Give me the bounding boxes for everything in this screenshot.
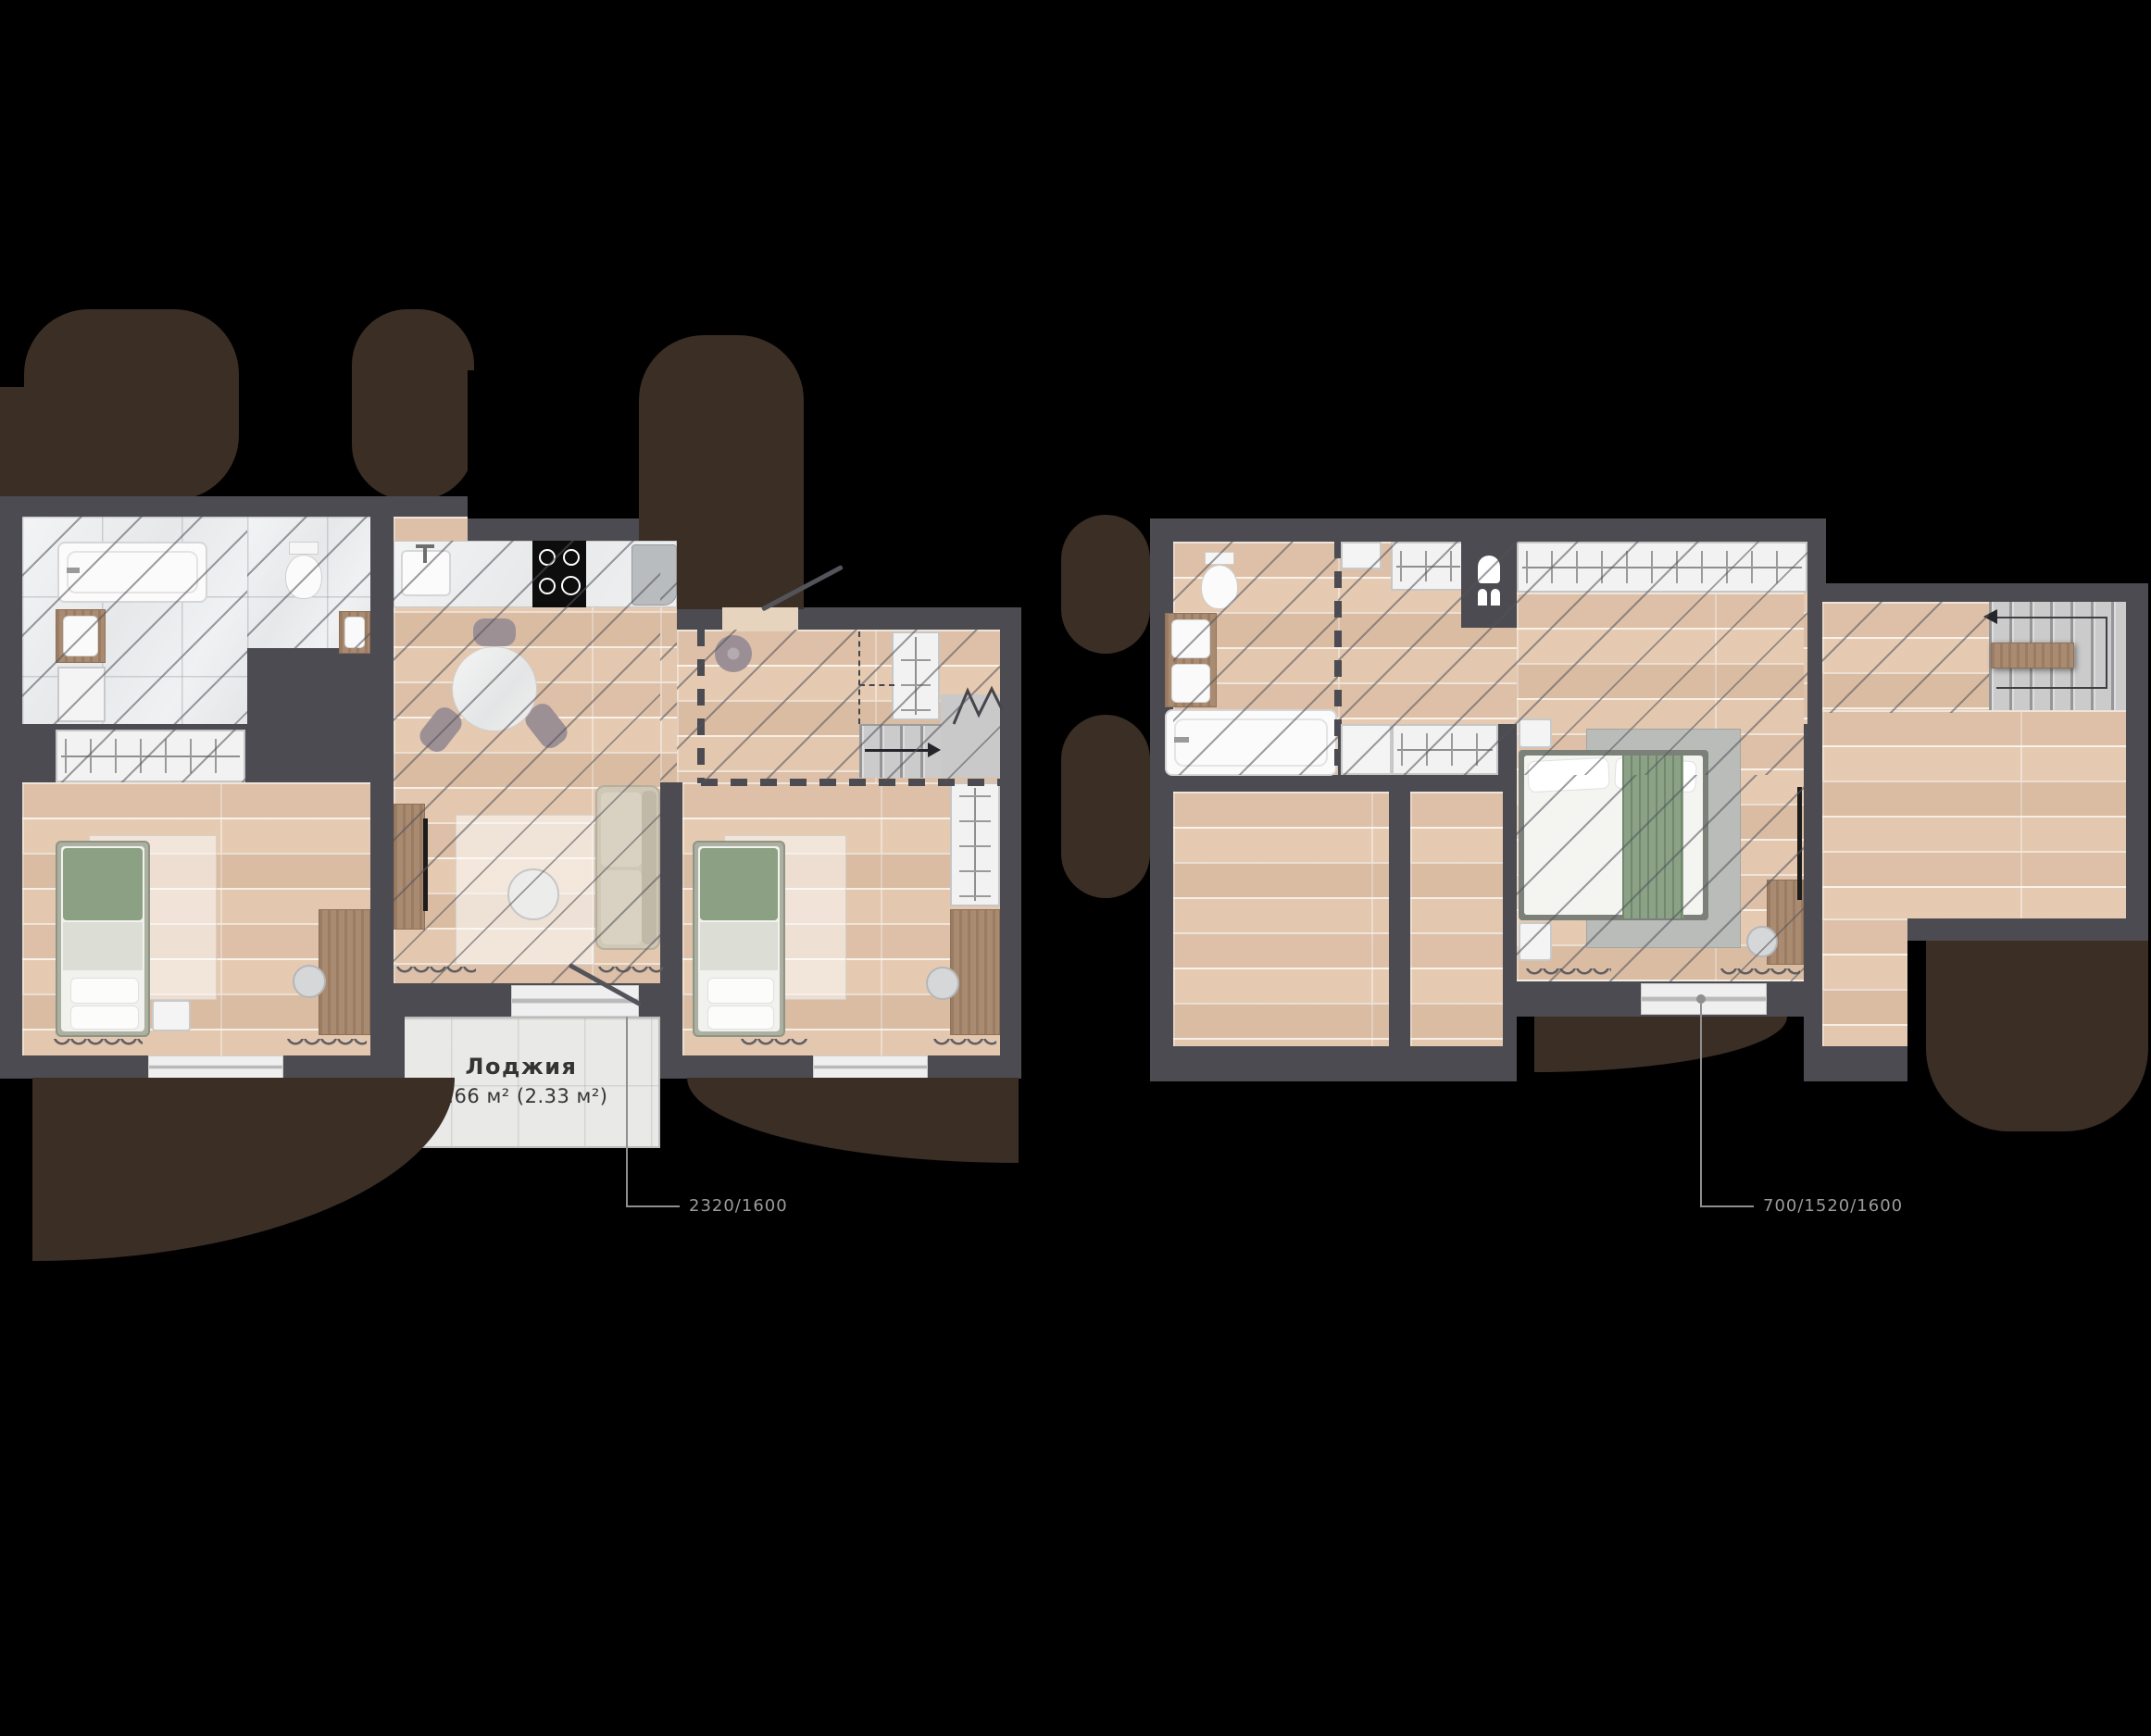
curtain <box>933 1039 996 1047</box>
cabinet <box>1341 542 1382 569</box>
leader-line <box>626 1205 680 1207</box>
toilet-tank <box>1205 552 1234 565</box>
office-chair <box>926 967 959 1000</box>
bed-pillow <box>70 978 139 1004</box>
stair-arrow-head <box>1983 609 1997 624</box>
leader-line <box>626 1017 628 1206</box>
fridge <box>632 544 677 606</box>
curtain <box>741 1039 807 1047</box>
bed-green-throw <box>1622 756 1683 918</box>
tv <box>423 818 428 911</box>
stair-wardrobe <box>892 631 940 720</box>
bed-sheet <box>63 922 143 970</box>
bathtub-faucet <box>67 568 80 573</box>
room-corridor-floor <box>1410 792 1503 1046</box>
stair-hall-floor <box>1822 602 1989 713</box>
burner <box>561 576 581 595</box>
tv-console <box>394 804 425 930</box>
bedroom2-window <box>813 1055 928 1079</box>
sink-basin <box>1171 619 1210 658</box>
niche-toilet-foot <box>1491 589 1500 606</box>
zone-divider-dashed <box>697 630 705 783</box>
room-left-floor <box>1173 792 1389 1046</box>
bathtub-faucet <box>1174 737 1189 743</box>
desk <box>319 909 370 1035</box>
kitchen-sink <box>401 550 451 596</box>
stair-outline-dashed <box>858 631 860 724</box>
toilet-bowl <box>1201 565 1238 609</box>
decor <box>954 689 1002 724</box>
sofa-back <box>642 791 657 944</box>
bed-blanket <box>63 848 143 920</box>
bed-pillow <box>1527 757 1610 793</box>
curtain <box>287 1039 367 1047</box>
sink-basin <box>63 616 98 656</box>
bed-pillow <box>707 1005 774 1030</box>
toilet <box>1194 552 1244 613</box>
room-right-floor <box>1822 918 1907 1046</box>
room-right-floor <box>1822 710 2126 918</box>
dining-table <box>452 646 537 731</box>
wc-sink-basin <box>344 617 365 648</box>
toilet-bowl <box>285 555 322 599</box>
burner <box>539 549 556 566</box>
door-swing-shade <box>32 1078 455 1261</box>
dining-chair <box>473 618 516 646</box>
kitchen-faucet <box>423 546 427 563</box>
curtain <box>1720 968 1800 977</box>
burner <box>563 549 580 566</box>
niche-toilet-foot <box>1478 589 1487 606</box>
tv <box>1797 787 1802 900</box>
toilet-tank <box>289 542 319 555</box>
double-vanity <box>1165 613 1217 707</box>
sink-counter <box>56 609 106 663</box>
bed-single <box>56 841 150 1037</box>
curtain <box>396 967 476 975</box>
bed-double <box>1519 750 1708 920</box>
wc-niche-wall <box>1461 542 1517 628</box>
sofa <box>595 785 660 950</box>
coffee-table <box>507 868 559 920</box>
cooktop <box>532 541 586 607</box>
door-swing-shade <box>687 1078 1019 1163</box>
stair-outline-dashed <box>859 684 894 686</box>
toilet <box>278 542 330 603</box>
bed-sheet <box>700 922 778 970</box>
zone-divider-dashed <box>701 779 1002 786</box>
pouf <box>715 635 752 672</box>
bed-pillow <box>707 978 774 1004</box>
silhouette-cut <box>1826 518 2148 583</box>
dresser <box>1341 724 1392 775</box>
stair-arrow-head <box>928 743 941 757</box>
stair-break-line <box>952 685 1004 728</box>
bed-pillow <box>70 1005 139 1030</box>
bathtub-inner <box>1174 718 1328 767</box>
bathtub-inner <box>67 551 198 593</box>
wardrobe <box>950 782 1000 906</box>
curtain <box>598 967 663 975</box>
entrance-threshold <box>722 607 798 631</box>
nightstand <box>1519 922 1552 961</box>
leader-line <box>1700 1000 1702 1206</box>
shade-blob <box>352 309 474 500</box>
loggia-label: Лоджия <box>382 1054 660 1080</box>
shade-blob <box>1926 941 2148 1131</box>
burner <box>539 578 556 594</box>
window-dimension-label: 700/1520/1600 <box>1763 1196 1903 1216</box>
long-wardrobe <box>1517 542 1807 593</box>
office-chair <box>1746 926 1778 957</box>
sofa-cushion <box>601 793 642 867</box>
bathtub <box>1165 709 1337 776</box>
wardrobe <box>1391 542 1466 591</box>
stair-arrow <box>865 749 930 752</box>
sofa-cushion <box>601 870 642 944</box>
nightstand <box>1519 718 1552 748</box>
bathtub <box>57 542 207 603</box>
room-kitchen-living-floor <box>394 517 468 541</box>
hall-wardrobe <box>56 730 245 782</box>
sink-basin <box>1171 664 1210 703</box>
washing-machine <box>57 667 106 722</box>
floorplan-canvas: Лоджия 4.66 м² (2.33 м²) 2320/1600 <box>0 0 2151 1736</box>
window-dimension-label: 2320/1600 <box>689 1196 788 1216</box>
desk <box>950 909 1000 1035</box>
bed-blanket <box>700 848 778 920</box>
stair-outline <box>1996 617 2107 689</box>
shade-blob <box>1061 715 1150 898</box>
wc-sink <box>339 611 370 654</box>
wardrobe <box>1392 724 1498 775</box>
bedroom1-window <box>148 1055 283 1079</box>
leader-line <box>1700 1205 1754 1207</box>
curtain <box>54 1039 143 1047</box>
curtain <box>1526 968 1611 977</box>
shade-blob <box>1061 515 1150 654</box>
office-chair <box>293 965 326 998</box>
bed-single <box>693 841 785 1037</box>
nightstand <box>152 1000 191 1031</box>
niche-toilet-bowl <box>1478 556 1500 583</box>
kitchen-faucet-bar <box>416 544 434 548</box>
